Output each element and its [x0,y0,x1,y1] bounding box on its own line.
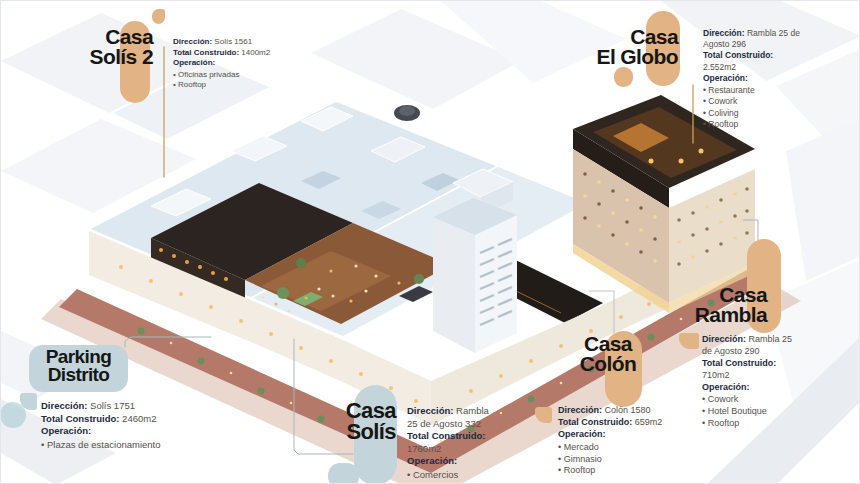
callout-details: Dirección: Rambla 25 de Agosto 296 Total… [703,28,804,130]
direccion-label: Dirección: [173,37,212,46]
total-row: Total Construido: 1760m2 [407,430,491,455]
title-line: Rambla [695,305,767,325]
operacion-list: Plazas de estacionamiento [41,439,196,452]
callout-title: Casa Colón [548,334,668,375]
operacion-label: Operación: [41,425,196,438]
operacion-label: Operación: [407,455,491,468]
operacion-item: Restaurante [703,85,804,96]
title-line: Casa [548,334,668,354]
total-row: Total Construido: 2460m2 [41,413,196,426]
operacion-label: Operación: [703,73,804,84]
total-label: Total Construido: [702,358,776,368]
title-line: Casa [90,27,154,47]
total-label: Total Construido: [703,50,773,60]
total-label: Total Construido: [407,430,485,441]
title-line: Distrito [29,366,128,384]
direccion-value: Colón 1580 [605,405,651,415]
direccion-row: Dirección: Rambla 25 de Agosto 290 [702,334,802,358]
operacion-list: Oficinas privadas Rooftop [173,70,295,91]
callout-title: Casa Rambla [695,285,767,326]
direccion-row: Dirección: Rambla 25 de Agosto 332 [407,405,491,430]
total-label: Total Construido: [558,417,632,427]
operacion-item: Gimnasio [558,454,672,466]
direccion-value: Solís 1751 [90,400,135,411]
operacion-list: Comercios Oficinas privadas Rooftop [407,469,491,484]
callout-details: Dirección: Rambla 25 de Agosto 290 Total… [702,334,802,430]
direccion-label: Dirección: [407,405,453,416]
operacion-item: Cowork [702,394,802,406]
operacion-item: Hotel Boutique [702,406,802,418]
operacion-item: Plazas de estacionamiento [41,439,196,452]
callout-details: Dirección: Solís 1751 Total Construido: … [41,400,196,451]
callout-title: Casa Solís 2 [90,27,154,68]
direccion-row: Dirección: Colón 1580 [558,405,672,417]
direccion-label: Dirección: [703,28,745,38]
title-line: Solís 2 [90,47,154,67]
accent-dot [328,463,359,484]
direccion-label: Dirección: [41,400,87,411]
total-value: 1760m2 [407,443,441,454]
direccion-label: Dirección: [558,405,602,415]
callout-details: Dirección: Rambla 25 de Agosto 332 Total… [407,405,491,484]
title-line: El Globo [596,47,678,67]
title-line: Colón [548,354,668,374]
operacion-label: Operación: [558,429,672,441]
total-row: Total Construido: 2.552m2 [703,50,804,72]
total-row: Total Construido: 659m2 [558,417,672,429]
direccion-row: Dirección: Solís 1751 [41,400,196,413]
callout-details: Dirección: Colón 1580 Total Construido: … [558,405,672,477]
operacion-label: Operación: [173,58,295,69]
title-line: Casa [346,400,396,421]
total-value: 2460m2 [122,413,156,424]
total-row: Total Construido: 710m2 [702,358,802,382]
direccion-value: Solís 1561 [214,37,252,46]
infographic-canvas: Casa Solís 2 Dirección: Solís 1561 Total… [0,0,860,484]
operacion-item: Oficinas privadas [173,70,295,81]
total-value: 1400m2 [241,48,270,57]
accent-dot [614,67,633,87]
operacion-item: Comercios [407,469,491,482]
direccion-row: Dirección: Solís 1561 [173,37,295,48]
callout-details: Dirección: Solís 1561 Total Construido: … [173,37,295,91]
operacion-item: Cowork [703,96,804,107]
title-line: Casa [695,285,767,305]
operacion-item: Rooftop [558,465,672,477]
total-value: 710m2 [702,370,730,380]
operacion-label: Operación: [702,382,802,394]
operacion-item: Rooftop [702,418,802,430]
operacion-item: Mercado [558,442,672,454]
operacion-list: Mercado Gimnasio Rooftop [558,442,672,478]
operacion-item: Rooftop [173,80,295,91]
title-line: Casa [596,27,678,47]
total-label: Total Construido: [41,413,119,424]
operacion-item: Rooftop [703,119,804,130]
operacion-list: Cowork Hotel Boutique Rooftop [702,394,802,430]
callout-title: Casa Solís [346,400,396,443]
operacion-list: Restaurante Cowork Coliving Rooftop [703,85,804,130]
total-value: 2.552m2 [703,62,736,72]
total-label: Total Construido: [173,48,239,57]
direccion-label: Dirección: [702,334,746,344]
callout-title: Casa El Globo [596,27,678,68]
title-line: Solís [346,421,396,442]
operacion-item: Coliving [703,108,804,119]
direccion-row: Dirección: Rambla 25 de Agosto 296 [703,28,804,50]
callout-title: Parking Distrito [29,348,128,385]
total-value: 659m2 [635,417,663,427]
accent-dot [152,9,165,24]
total-row: Total Construido: 1400m2 [173,48,295,59]
